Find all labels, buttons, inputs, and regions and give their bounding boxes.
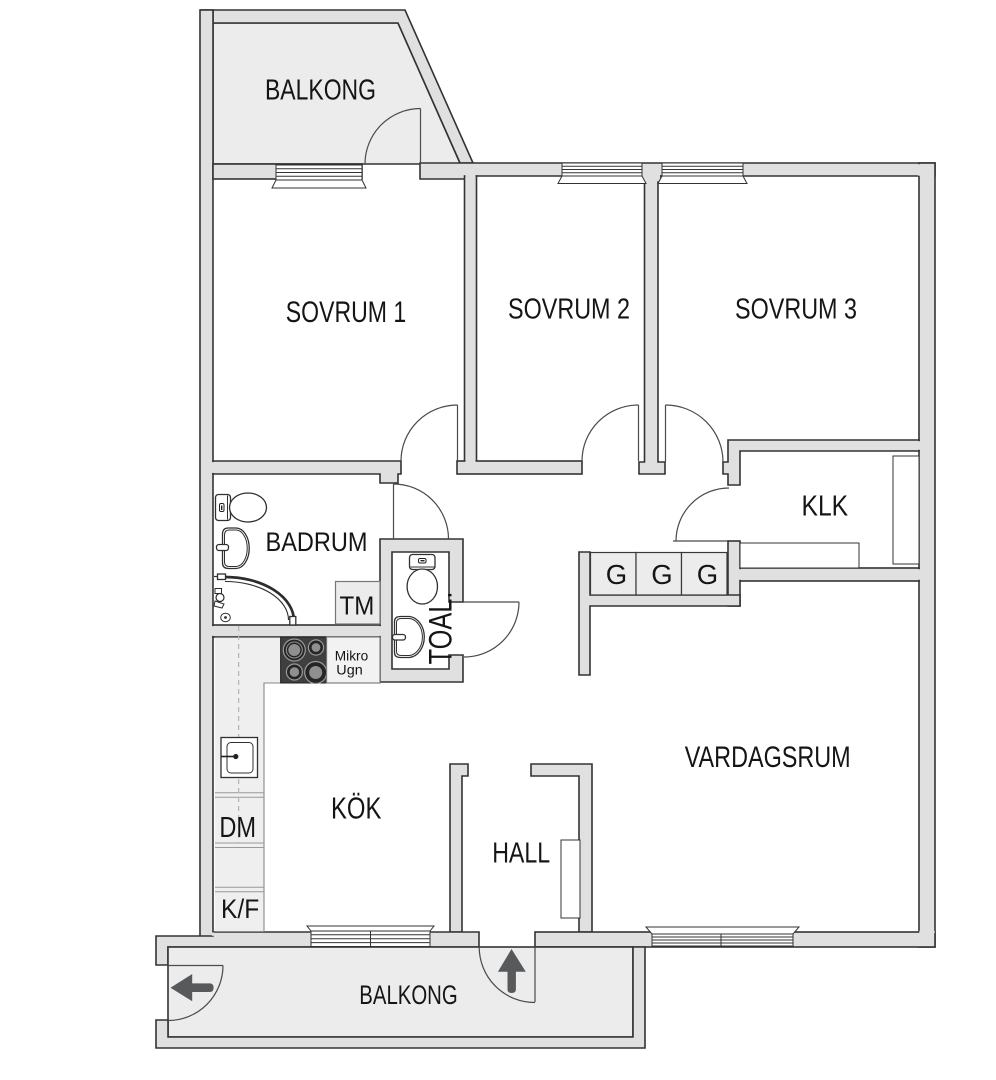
svg-text:DM: DM xyxy=(219,812,256,844)
svg-text:BALKONG: BALKONG xyxy=(359,980,457,1010)
svg-text:TOAL.: TOAL. xyxy=(423,592,459,665)
svg-text:HALL: HALL xyxy=(492,837,550,869)
svg-text:G: G xyxy=(606,559,627,590)
svg-text:BADRUM: BADRUM xyxy=(266,527,368,557)
svg-text:VARDAGSRUM: VARDAGSRUM xyxy=(685,741,851,774)
svg-text:KLK: KLK xyxy=(802,490,849,522)
svg-text:KÖK: KÖK xyxy=(331,791,382,826)
svg-text:G: G xyxy=(697,559,718,590)
svg-text:K/F: K/F xyxy=(221,894,259,924)
svg-text:SOVRUM 3: SOVRUM 3 xyxy=(735,293,857,325)
svg-text:Ugn: Ugn xyxy=(336,662,362,678)
svg-text:TM: TM xyxy=(340,590,375,620)
svg-text:G: G xyxy=(651,559,672,590)
svg-text:BALKONG: BALKONG xyxy=(265,75,376,107)
svg-text:SOVRUM 1: SOVRUM 1 xyxy=(286,296,407,329)
svg-text:SOVRUM 2: SOVRUM 2 xyxy=(508,293,630,325)
